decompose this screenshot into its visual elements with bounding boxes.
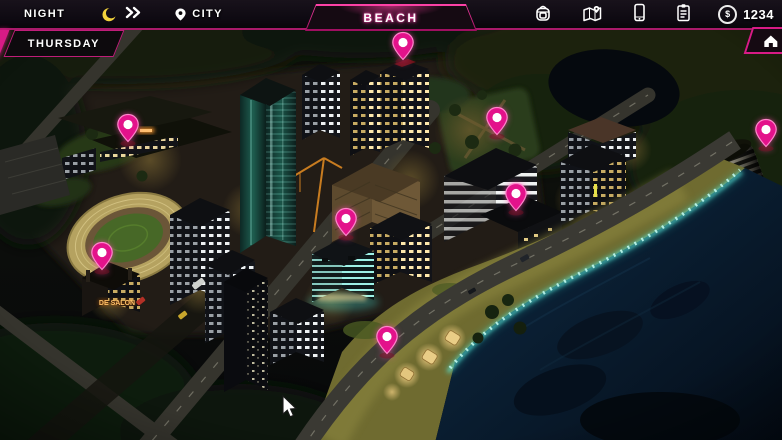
map-pin-2[interactable]	[115, 113, 141, 147]
planner-button[interactable]	[674, 1, 693, 27]
day-label: THURSDAY	[28, 38, 100, 50]
map-pin-1[interactable]	[390, 31, 416, 65]
map-pin-5[interactable]	[503, 182, 529, 216]
map-pin-6[interactable]	[333, 207, 359, 241]
clipboard-icon	[676, 3, 691, 25]
location-pin-icon	[174, 7, 187, 22]
map-pin-3[interactable]	[484, 106, 510, 140]
backpack-icon	[534, 3, 552, 25]
area-banner: BEACH	[305, 4, 477, 31]
fast-forward-button[interactable]	[123, 4, 144, 24]
hud-toolbar: $ 1234	[519, 0, 782, 28]
map-pin-7[interactable]	[89, 241, 115, 275]
time-of-day-label: NIGHT	[24, 8, 65, 20]
money-amount: 1234	[743, 7, 774, 22]
area-label: BEACH	[363, 11, 418, 25]
map-pin-4[interactable]	[753, 118, 779, 152]
area-banner-inner: BEACH	[305, 6, 477, 29]
location-label: CITY	[192, 8, 223, 20]
home-icon	[763, 34, 779, 48]
city-map-scene: DE SALON DE SALON	[0, 0, 782, 440]
top-hud-bar: NIGHT CITY BEACH	[0, 0, 782, 30]
game-viewport: DE SALON DE SALON	[0, 0, 782, 440]
inventory-button[interactable]	[532, 1, 554, 27]
phone-icon	[633, 3, 646, 25]
fast-forward-icon	[125, 6, 142, 22]
map-pin-8[interactable]	[374, 325, 400, 359]
coin-icon: $	[718, 5, 737, 24]
map-button[interactable]	[580, 2, 605, 27]
day-badge-plate: THURSDAY	[4, 30, 125, 57]
money-display: $ 1234	[718, 5, 774, 24]
moon-icon	[101, 7, 116, 22]
day-badge: THURSDAY	[0, 30, 125, 57]
phone-button[interactable]	[631, 1, 648, 27]
map-icon	[582, 4, 603, 25]
